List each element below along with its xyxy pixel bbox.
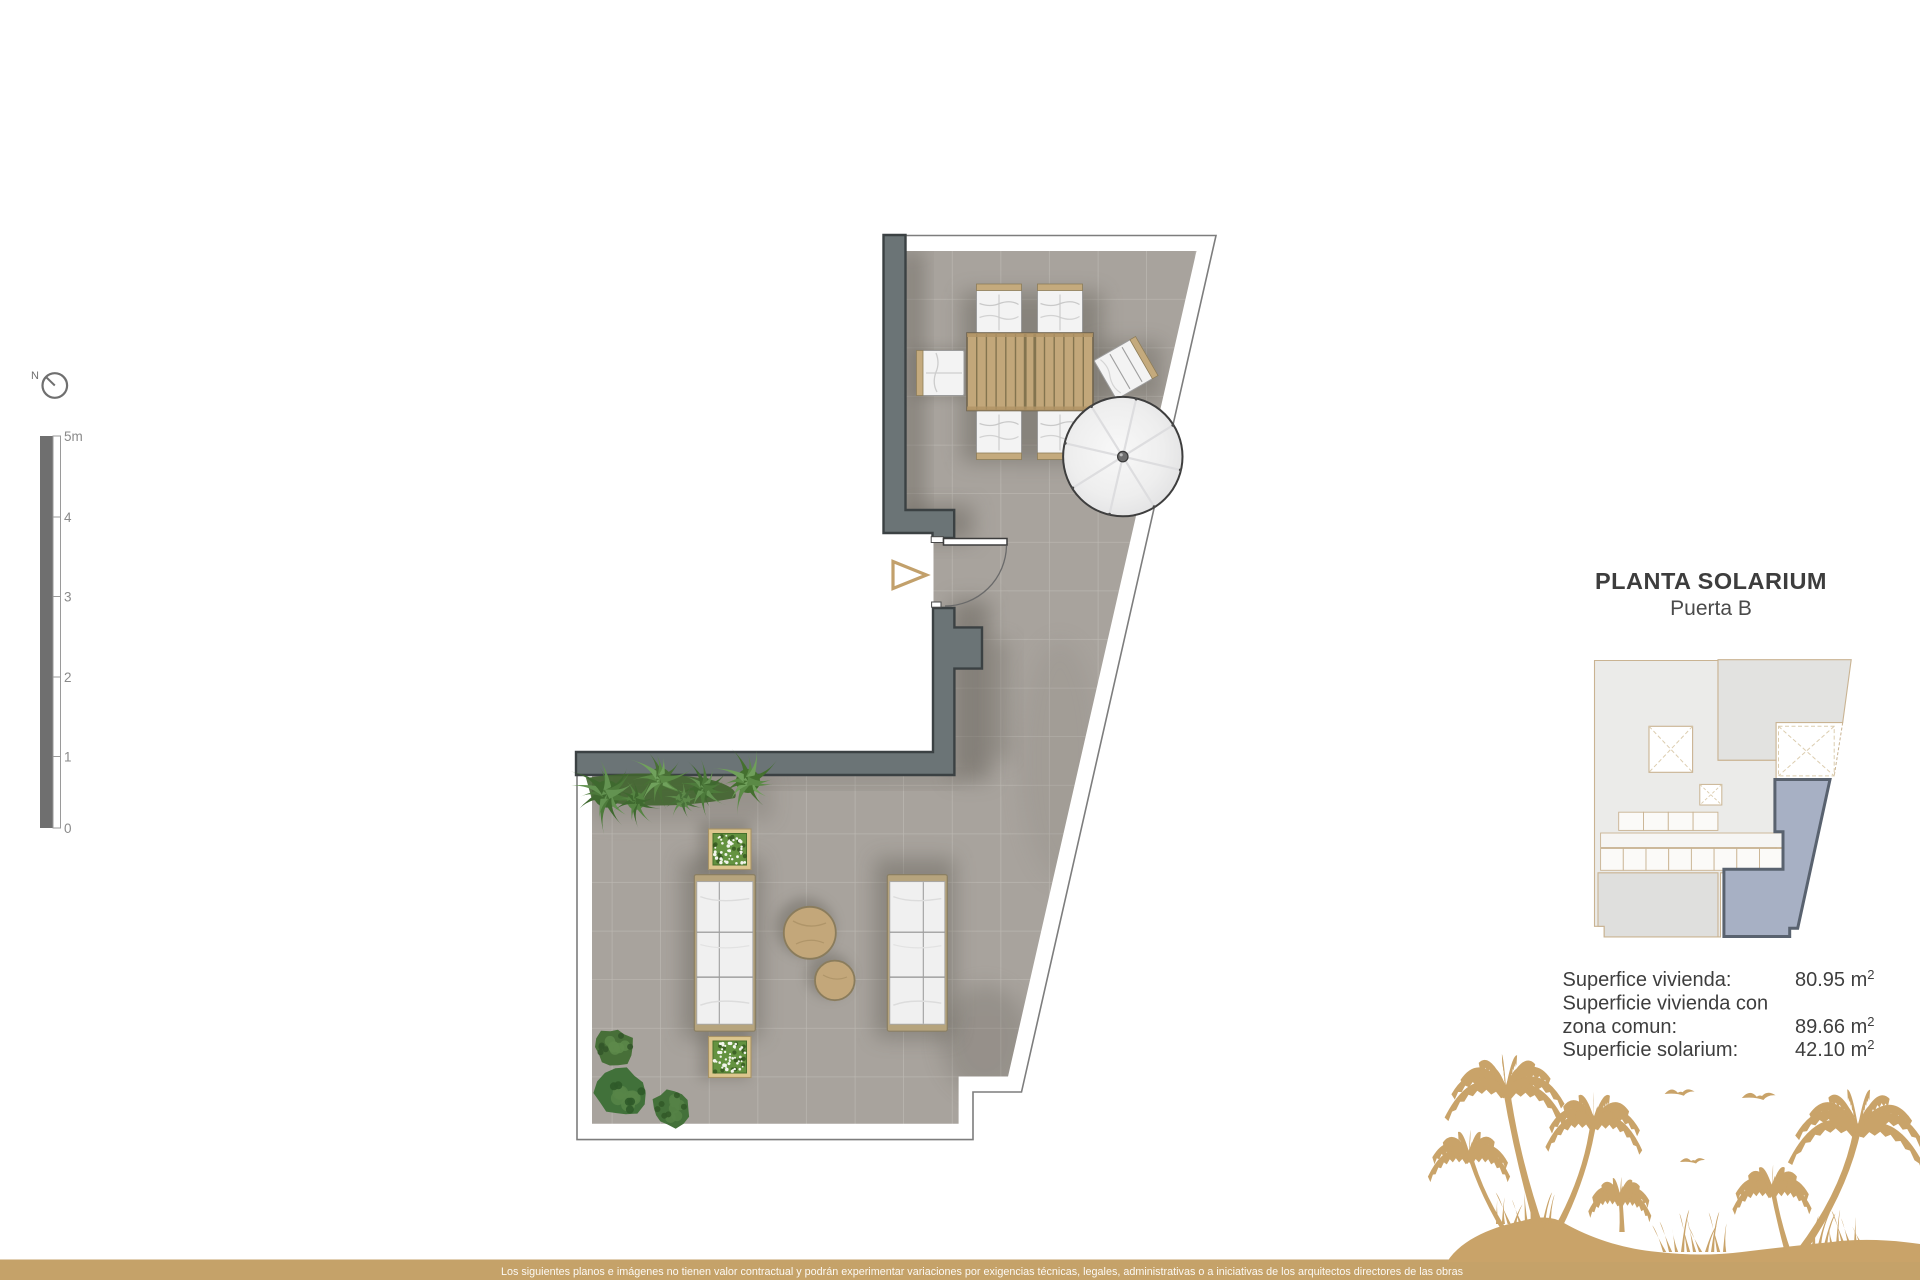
svg-text:3: 3 <box>64 590 72 605</box>
svg-text:PLANTA SOLARIUM: PLANTA SOLARIUM <box>1595 568 1827 594</box>
svg-text:42.10 m2: 42.10 m2 <box>1795 1037 1875 1061</box>
svg-text:Superficie solarium:: Superficie solarium: <box>1563 1039 1739 1061</box>
svg-text:2: 2 <box>64 670 72 685</box>
svg-text:0: 0 <box>64 821 72 836</box>
svg-text:Superficie vivienda con: Superficie vivienda con <box>1563 993 1769 1015</box>
svg-text:5m: 5m <box>64 429 83 444</box>
svg-text:Puerta B: Puerta B <box>1670 597 1752 620</box>
svg-text:Superfice vivienda:: Superfice vivienda: <box>1563 969 1732 991</box>
svg-text:89.66 m2: 89.66 m2 <box>1795 1014 1875 1038</box>
svg-text:80.95 m2: 80.95 m2 <box>1795 967 1875 991</box>
svg-text:N: N <box>31 370 39 382</box>
svg-text:4: 4 <box>64 510 72 525</box>
svg-text:zona comun:: zona comun: <box>1563 1016 1678 1038</box>
svg-text:Los siguientes planos e imágen: Los siguientes planos e imágenes no tien… <box>501 1266 1464 1278</box>
svg-text:1: 1 <box>64 750 72 765</box>
